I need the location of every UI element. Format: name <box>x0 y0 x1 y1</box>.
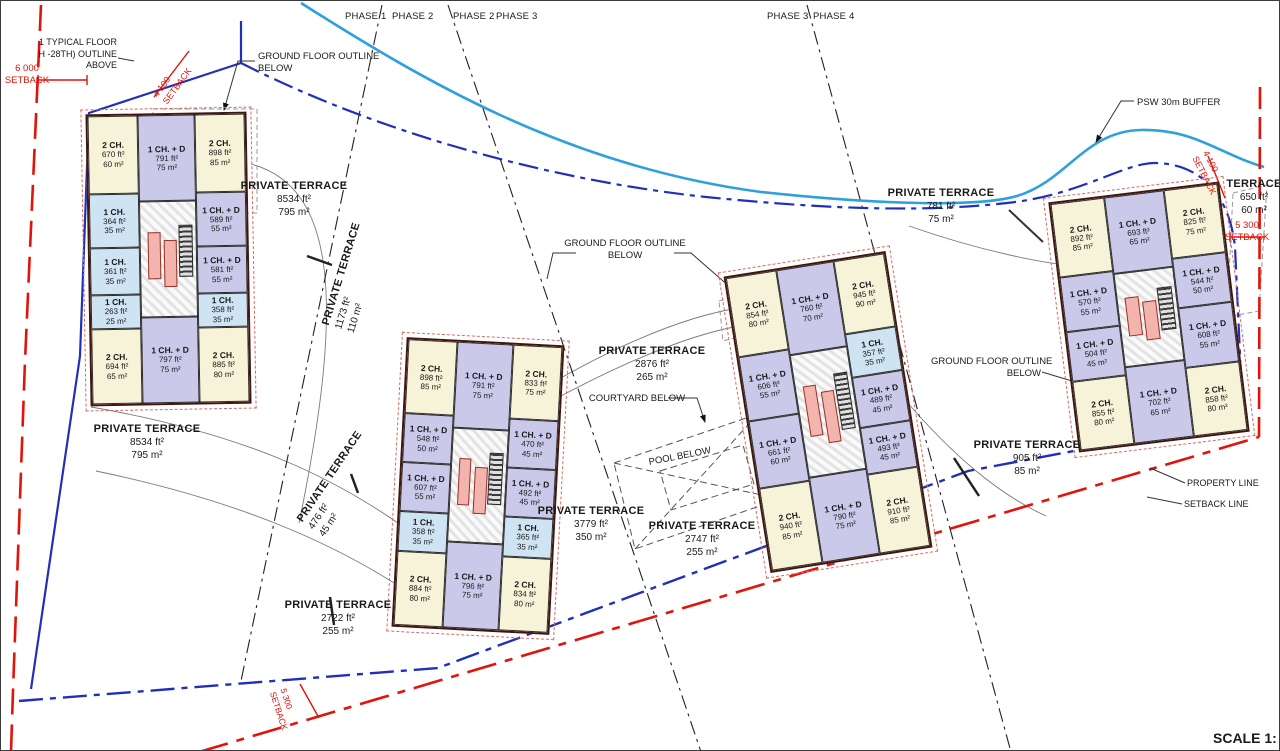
setback-line-bottom <box>19 419 1243 701</box>
site-plan-canvas: 2 CH.670 ft²60 m²1 CH.364 ft²35 m²1 CH.3… <box>0 0 1280 751</box>
setback-line-left <box>31 21 241 689</box>
setback-line-top <box>241 63 1243 419</box>
courtyard-pool-outline <box>614 414 780 549</box>
phase-boundary-lines <box>241 5 1011 751</box>
leader-lines <box>118 58 1212 504</box>
property-line-left <box>11 5 41 751</box>
property-line-bottom <box>199 437 1259 751</box>
property-line-right <box>1259 87 1260 437</box>
ground-floor-outlines <box>153 109 1267 341</box>
site-linework <box>1 1 1280 751</box>
terrace-dimension-ticks <box>307 256 979 625</box>
terrace-outlines <box>91 164 1067 601</box>
property-lines <box>11 5 1260 751</box>
